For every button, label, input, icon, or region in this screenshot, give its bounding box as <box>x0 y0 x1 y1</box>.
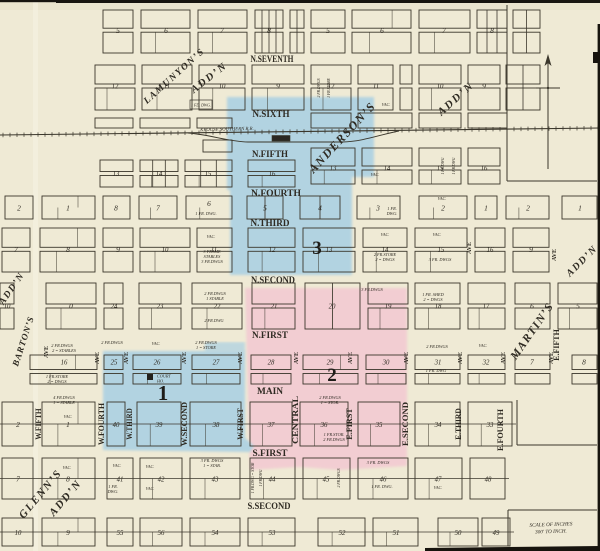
svg-text:22: 22 <box>214 304 221 311</box>
svg-text:N.SEVENTH: N.SEVENTH <box>251 54 294 64</box>
svg-text:55: 55 <box>117 530 124 537</box>
svg-text:36: 36 <box>320 422 328 429</box>
svg-text:8: 8 <box>582 358 586 367</box>
svg-text:1 FR.DWG: 1 FR.DWG <box>441 157 445 174</box>
svg-text:1 = STORE: 1 = STORE <box>196 345 216 350</box>
svg-text:1: 1 <box>484 204 488 213</box>
svg-text:2 FR.DWGS: 2 FR.DWGS <box>337 468 341 487</box>
svg-text:VAC.: VAC. <box>382 102 391 107</box>
svg-text:1: 1 <box>578 204 582 213</box>
svg-text:46: 46 <box>380 477 387 484</box>
svg-text:6: 6 <box>207 199 211 208</box>
svg-text:13: 13 <box>326 247 333 254</box>
svg-text:9: 9 <box>529 245 533 254</box>
svg-text:VAC.: VAC. <box>152 341 161 346</box>
svg-text:43: 43 <box>212 477 219 484</box>
svg-text:25: 25 <box>111 360 118 367</box>
svg-text:E.FIRST: E.FIRST <box>345 408 354 440</box>
svg-text:VAC.: VAC. <box>479 343 488 348</box>
svg-text:2 = DWGS: 2 = DWGS <box>375 257 395 262</box>
svg-text:14: 14 <box>156 171 163 178</box>
svg-text:19: 19 <box>385 304 392 311</box>
svg-text:10: 10 <box>15 530 22 537</box>
svg-text:300′ TO INCH.: 300′ TO INCH. <box>535 528 567 535</box>
svg-text:51: 51 <box>393 530 400 537</box>
svg-text:1 = STOR.: 1 = STOR. <box>321 400 339 405</box>
svg-text:6: 6 <box>530 302 534 311</box>
svg-text:10: 10 <box>219 84 226 91</box>
svg-text:2 FR.DWGS: 2 FR.DWGS <box>317 78 321 97</box>
svg-text:13: 13 <box>113 171 120 178</box>
svg-text:VAC.: VAC. <box>207 234 216 239</box>
svg-text:E.THIRD: E.THIRD <box>454 408 463 440</box>
svg-text:12: 12 <box>112 84 119 91</box>
svg-text:1 FR. DWG.: 1 FR. DWG. <box>195 211 216 216</box>
svg-text:2: 2 <box>16 420 20 429</box>
svg-text:7: 7 <box>442 26 446 35</box>
svg-text:1: 1 <box>66 204 70 213</box>
svg-text:VAC.: VAC. <box>146 486 155 491</box>
svg-text:9: 9 <box>66 528 70 537</box>
svg-text:52: 52 <box>339 530 346 537</box>
svg-text:26: 26 <box>154 360 161 367</box>
svg-text:AVE: AVE <box>348 352 354 364</box>
svg-text:24: 24 <box>111 304 118 311</box>
svg-text:9: 9 <box>116 245 120 254</box>
svg-text:1 FR.DWG: 1 FR.DWG <box>452 157 456 174</box>
svg-text:2 = STABLES: 2 = STABLES <box>52 348 77 353</box>
svg-text:AVE: AVE <box>294 352 300 364</box>
svg-text:AVE: AVE <box>549 352 555 364</box>
svg-text:12: 12 <box>269 247 276 254</box>
svg-text:38: 38 <box>212 422 220 429</box>
svg-text:VAC.: VAC. <box>434 485 443 490</box>
svg-text:16: 16 <box>487 247 494 254</box>
svg-text:28: 28 <box>268 360 275 367</box>
svg-text:1 FD. DWG.: 1 FD. DWG. <box>191 104 211 108</box>
svg-text:1 STABLE: 1 STABLE <box>206 296 224 301</box>
svg-text:16: 16 <box>481 166 488 173</box>
svg-text:44: 44 <box>269 477 276 484</box>
svg-text:AVE: AVE <box>238 352 244 364</box>
svg-text:AVE: AVE <box>182 352 188 364</box>
svg-text:7: 7 <box>530 358 534 367</box>
svg-text:1 FR. DWG.: 1 FR. DWG. <box>371 484 392 489</box>
svg-text:8: 8 <box>267 26 271 35</box>
svg-text:21: 21 <box>271 304 278 311</box>
svg-text:6: 6 <box>164 26 168 35</box>
svg-text:W.SECOND: W.SECOND <box>180 402 189 446</box>
svg-text:AVE: AVE <box>552 249 558 261</box>
svg-text:1 FR.STORE: 1 FR.STORE <box>327 77 331 97</box>
svg-text:W.FIFTH: W.FIFTH <box>34 408 43 440</box>
svg-text:1 = STABLE: 1 = STABLE <box>53 400 75 405</box>
svg-text:34: 34 <box>434 422 442 429</box>
svg-text:E.FOURTH: E.FOURTH <box>496 408 505 451</box>
svg-text:0: 0 <box>69 302 73 311</box>
svg-text:CENTRAL: CENTRAL <box>291 396 300 444</box>
svg-text:5: 5 <box>326 26 330 35</box>
svg-text:N.FIRST: N.FIRST <box>252 330 288 340</box>
svg-text:49: 49 <box>493 530 500 537</box>
svg-text:E.SECOND: E.SECOND <box>401 402 410 446</box>
svg-text:VAC.: VAC. <box>64 414 73 419</box>
svg-text:15: 15 <box>205 171 212 178</box>
svg-text:33: 33 <box>486 422 494 429</box>
svg-text:AVE: AVE <box>501 352 507 364</box>
svg-text:3 FR.DWGS: 3 FR.DWGS <box>361 287 383 292</box>
svg-text:MAIN: MAIN <box>257 386 284 396</box>
svg-text:16: 16 <box>269 171 276 178</box>
svg-text:8: 8 <box>66 475 70 484</box>
svg-text:3 FR. DWGS: 3 FR. DWGS <box>429 257 452 262</box>
svg-text:2: 2 <box>17 204 21 213</box>
svg-text:3 FR. DWGS: 3 FR. DWGS <box>367 460 390 465</box>
svg-text:2: 2 <box>526 204 530 213</box>
svg-text:3 FR.DWGS: 3 FR.DWGS <box>201 259 223 264</box>
svg-text:47: 47 <box>435 477 442 484</box>
svg-text:15: 15 <box>438 247 445 254</box>
svg-text:VAC.: VAC. <box>433 232 442 237</box>
svg-text:18: 18 <box>435 304 442 311</box>
svg-text:27: 27 <box>213 360 220 367</box>
svg-text:VAC.: VAC. <box>438 196 447 201</box>
svg-text:7: 7 <box>16 475 20 484</box>
svg-text:16: 16 <box>61 360 68 367</box>
svg-text:53: 53 <box>269 530 276 537</box>
svg-text:13: 13 <box>330 166 337 173</box>
svg-text:2 FR.DWGS: 2 FR.DWGS <box>426 344 448 349</box>
svg-text:2: 2 <box>327 365 337 386</box>
svg-text:37: 37 <box>267 422 275 429</box>
svg-text:5: 5 <box>116 26 120 35</box>
svg-text:AVE: AVE <box>467 242 473 254</box>
svg-text:1: 1 <box>66 420 70 429</box>
svg-text:2 = DWGS: 2 = DWGS <box>47 379 67 384</box>
svg-text:41: 41 <box>117 477 124 484</box>
svg-text:1 FR.DWG = STOR: 1 FR.DWG = STOR <box>251 462 255 493</box>
svg-text:VAC.: VAC. <box>381 232 390 237</box>
svg-text:DWG.: DWG. <box>386 211 398 216</box>
svg-text:32: 32 <box>482 360 490 367</box>
svg-text:VAC.: VAC. <box>371 172 380 177</box>
svg-text:20: 20 <box>329 304 336 311</box>
svg-text:10: 10 <box>162 247 169 254</box>
svg-text:W.THIRD: W.THIRD <box>125 408 134 440</box>
svg-text:2 FR.DWGS: 2 FR.DWGS <box>101 340 123 345</box>
svg-text:1 FR.DWG: 1 FR.DWG <box>259 469 263 486</box>
svg-text:2 FR.DWGS: 2 FR.DWGS <box>323 437 345 442</box>
svg-text:AVE: AVE <box>458 352 464 364</box>
svg-text:1 = STAB.: 1 = STAB. <box>203 463 221 468</box>
svg-text:3: 3 <box>375 204 380 213</box>
svg-text:56: 56 <box>158 530 165 537</box>
svg-text:N.SIXTH: N.SIXTH <box>253 109 290 119</box>
svg-text:42: 42 <box>158 477 165 484</box>
svg-text:2 FR.DWG: 2 FR.DWG <box>204 318 224 323</box>
svg-text:N.FIFTH: N.FIFTH <box>252 149 288 159</box>
svg-text:40: 40 <box>113 422 120 429</box>
svg-text:50: 50 <box>455 530 462 537</box>
svg-text:14: 14 <box>384 166 391 173</box>
svg-text:VAC.: VAC. <box>63 465 72 470</box>
svg-text:1 FR. DWG: 1 FR. DWG <box>426 368 447 373</box>
svg-text:VAC.: VAC. <box>113 463 122 468</box>
svg-text:9: 9 <box>276 82 280 91</box>
svg-text:10: 10 <box>437 84 444 91</box>
svg-text:AVE: AVE <box>404 352 410 364</box>
svg-text:W.FOURTH: W.FOURTH <box>97 402 106 445</box>
svg-text:54: 54 <box>212 530 219 537</box>
svg-text:8: 8 <box>114 204 118 213</box>
svg-text:23: 23 <box>157 304 164 311</box>
svg-text:7: 7 <box>14 245 18 254</box>
svg-text:DWG.: DWG. <box>107 489 119 494</box>
svg-text:N.FOURTH: N.FOURTH <box>251 188 301 198</box>
svg-text:N.SECOND: N.SECOND <box>251 275 295 285</box>
svg-text:3: 3 <box>312 238 322 259</box>
svg-text:7: 7 <box>156 204 160 213</box>
svg-text:8: 8 <box>490 26 494 35</box>
svg-text:5: 5 <box>576 302 580 311</box>
svg-text:2 = DWGS: 2 = DWGS <box>423 297 443 302</box>
svg-text:48: 48 <box>485 477 492 484</box>
svg-text:VAC.: VAC. <box>146 464 155 469</box>
svg-text:S.SECOND: S.SECOND <box>248 501 291 511</box>
svg-text:AVE: AVE <box>44 346 50 358</box>
svg-text:45: 45 <box>323 477 330 484</box>
svg-text:5: 5 <box>263 204 267 213</box>
svg-text:6: 6 <box>380 26 384 35</box>
svg-text:30: 30 <box>382 360 390 367</box>
svg-text:N.THIRD: N.THIRD <box>251 218 290 228</box>
svg-text:8: 8 <box>66 245 70 254</box>
svg-text:7: 7 <box>220 26 224 35</box>
svg-text:AVE: AVE <box>95 352 101 364</box>
svg-text:35: 35 <box>375 422 383 429</box>
svg-text:17: 17 <box>483 304 490 311</box>
svg-text:1: 1 <box>158 381 169 405</box>
svg-text:4: 4 <box>318 204 322 213</box>
svg-text:31: 31 <box>434 360 442 367</box>
svg-text:9: 9 <box>482 82 486 91</box>
svg-text:W.FIRST: W.FIRST <box>236 408 245 440</box>
svg-text:39: 39 <box>155 422 163 429</box>
svg-text:AVE: AVE <box>124 352 130 364</box>
svg-text:HO.: HO. <box>156 379 164 384</box>
svg-text:2: 2 <box>441 204 445 213</box>
svg-text:11: 11 <box>373 84 379 91</box>
svg-text:S.FIRST: S.FIRST <box>253 448 288 458</box>
